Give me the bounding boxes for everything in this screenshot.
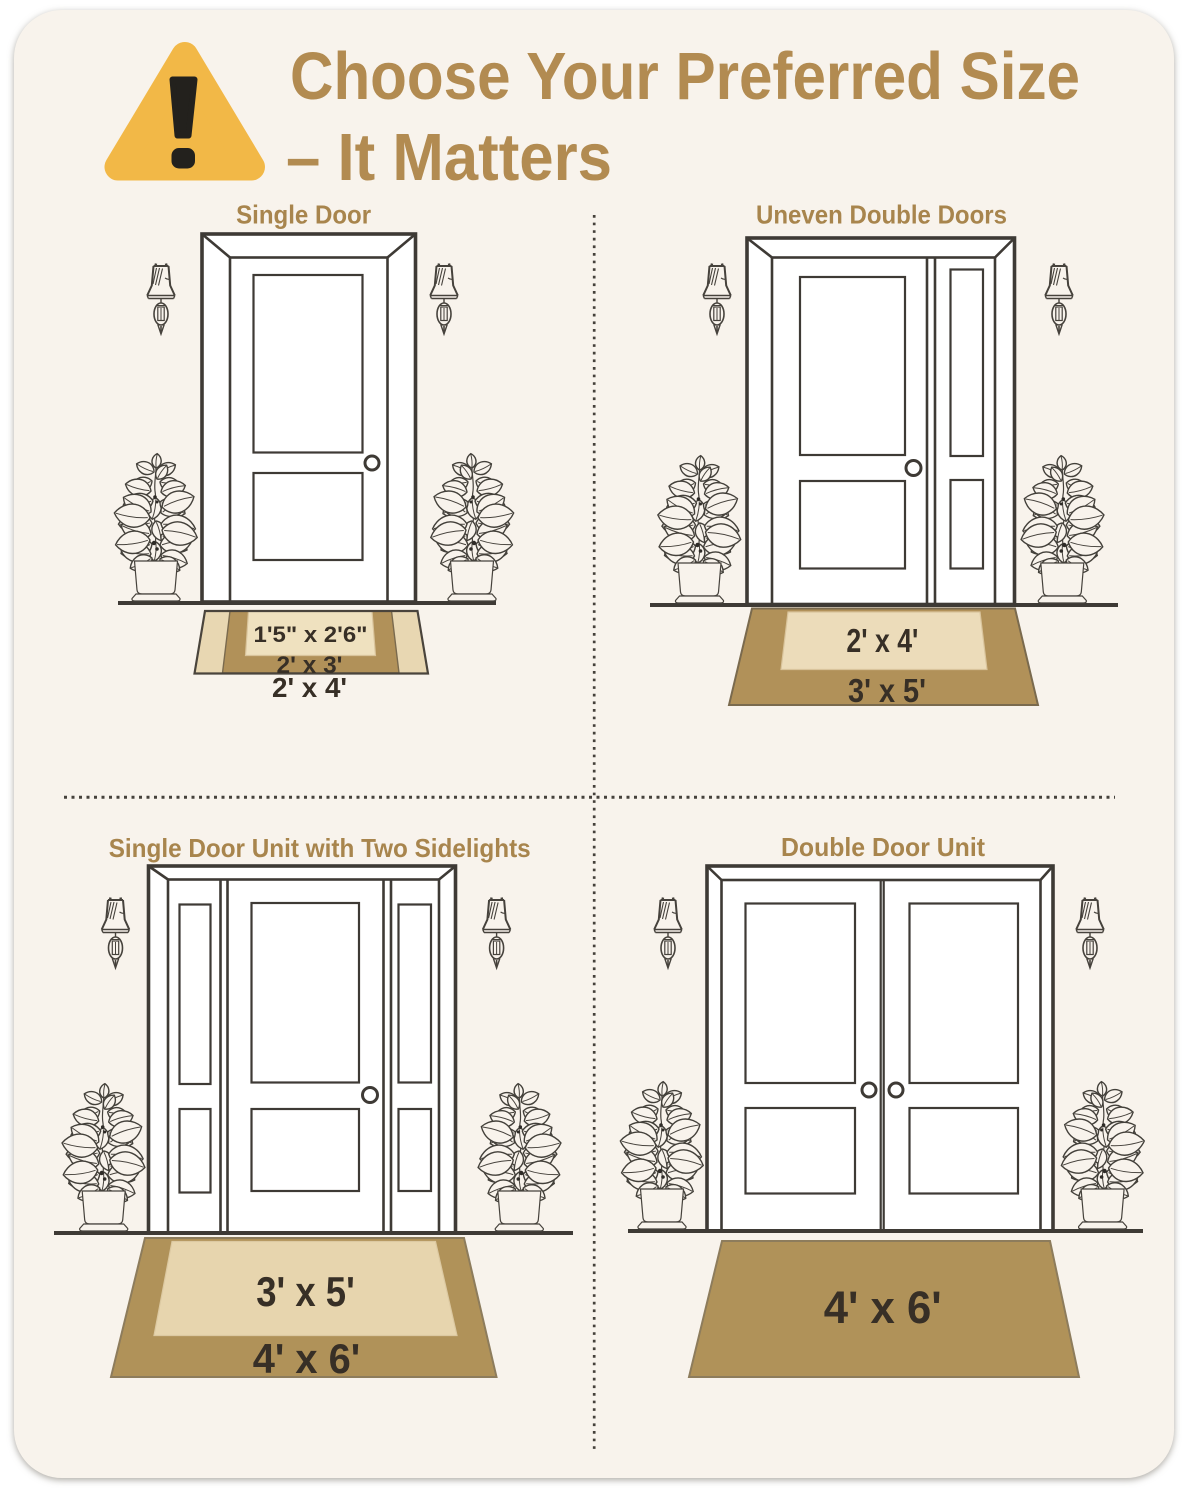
svg-text:Single Door Unit with Two Side: Single Door Unit with Two Sidelights [109, 833, 531, 863]
svg-text:Double Door Unit: Double Door Unit [781, 832, 985, 862]
svg-text:Choose Your Preferred Size: Choose Your Preferred Size [290, 39, 1080, 114]
svg-text:3' x 5': 3' x 5' [256, 1268, 355, 1315]
svg-text:3' x 5': 3' x 5' [848, 672, 926, 709]
svg-text:4' x 6': 4' x 6' [253, 1335, 361, 1382]
svg-text:– It Matters: – It Matters [286, 120, 612, 195]
svg-text:2' x 4': 2' x 4' [846, 622, 918, 659]
svg-text:Uneven Double Doors: Uneven Double Doors [756, 200, 1007, 230]
svg-text:Single Door: Single Door [236, 200, 371, 230]
svg-text:4' x 6': 4' x 6' [824, 1282, 942, 1333]
svg-text:2' x 4': 2' x 4' [272, 672, 347, 703]
svg-text:1'5" x 2'6": 1'5" x 2'6" [254, 622, 368, 647]
